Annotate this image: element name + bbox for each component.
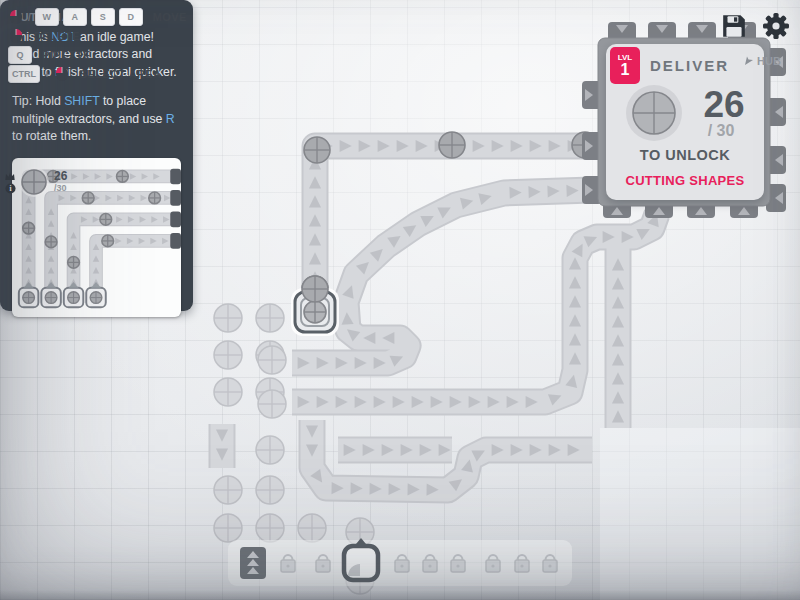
toolbar-slot-locked[interactable]: [530, 540, 570, 586]
hub-compass-arrow-icon: [744, 56, 754, 66]
crown-icon: [4, 171, 16, 181]
level-badge: LVL 1: [610, 47, 640, 84]
belt-item-circle-shape: [304, 137, 330, 163]
resource-node-circle[interactable]: [214, 378, 242, 406]
toolbar-slot-belt[interactable]: [233, 540, 273, 586]
belt-icon: [233, 540, 273, 586]
game-viewport: / W A S D MOVE DELETE Q PIPETTE CTRL + S…: [0, 0, 800, 600]
info-icon: i: [5, 183, 16, 194]
hint-separator: /: [28, 12, 31, 23]
hub-map-label: HUB: [744, 55, 781, 67]
level-badge-number: 1: [621, 62, 630, 78]
hint-plus: +: [44, 69, 50, 80]
hint-delete-label: DELETE: [34, 30, 80, 42]
resource-node-circle[interactable]: [214, 304, 242, 332]
resource-node-circle[interactable]: [256, 514, 284, 542]
hub-reward-label: CUTTING SHAPES: [606, 173, 764, 188]
key-s: S: [91, 8, 115, 26]
pinned-goal-total: /30: [54, 182, 67, 194]
save-button[interactable]: [718, 10, 750, 42]
toolbar-slot-locked[interactable]: [303, 540, 343, 586]
toolbar-slot-locked[interactable]: [438, 540, 478, 586]
resource-node-circle[interactable]: [214, 476, 242, 504]
settings-button[interactable]: [760, 10, 792, 42]
goal-shape-circle-icon: [18, 166, 50, 198]
key-a: A: [63, 8, 87, 26]
belt-item-circle-shape: [439, 132, 465, 158]
resource-node-circle[interactable]: [256, 476, 284, 504]
hint-select-label: SELECT AREA: [80, 68, 162, 80]
pinned-goal[interactable]: i 26 /30: [4, 166, 67, 198]
lock-icon: [303, 540, 343, 586]
resource-node-circle[interactable]: [256, 304, 284, 332]
lock-icon: [438, 540, 478, 586]
topbar: [718, 10, 792, 42]
resource-node-circle[interactable]: [258, 346, 286, 374]
keybinding-hints: / W A S D MOVE DELETE Q PIPETTE CTRL + S…: [8, 8, 187, 84]
hint-pipette-label: PIPETTE: [42, 49, 91, 61]
lock-icon: [268, 540, 308, 586]
toolbar-slot-locked[interactable]: [268, 540, 308, 586]
hub-goal-total: / 30: [692, 122, 750, 140]
svg-text:i: i: [9, 184, 11, 193]
hub-delivered-amount: 26: [692, 84, 756, 126]
extractor-icon: [341, 540, 381, 586]
hub-unlock-label: TO UNLOCK: [606, 147, 764, 163]
hint-select-area: CTRL + SELECT AREA: [8, 65, 187, 83]
hub-delivery-panel[interactable]: LVL 1 DELIVER 26 / 30 TO UNLOCK CUTTING …: [606, 44, 764, 200]
key-d: D: [119, 8, 143, 26]
hint-delete: DELETE: [8, 27, 187, 45]
key-w: W: [35, 8, 59, 26]
resource-node-circle[interactable]: [258, 390, 286, 418]
mouse-right-icon: [8, 28, 24, 44]
key-ctrl: CTRL: [8, 65, 40, 83]
bottom-vignette: [0, 590, 800, 600]
save-icon: [721, 13, 747, 39]
mouse-left-icon: [54, 66, 70, 82]
belt-item-circle-shape: [302, 276, 328, 302]
hint-move: / W A S D MOVE: [8, 8, 187, 26]
hint-move-label: MOVE: [153, 11, 187, 23]
toolbar-slot-extractor-selected[interactable]: [341, 540, 381, 586]
resource-node-circle[interactable]: [214, 514, 242, 542]
mouse-left-icon: [8, 9, 24, 25]
resource-node-circle[interactable]: [214, 341, 242, 369]
hub-deliver-title: DELIVER: [650, 57, 729, 74]
hub-goal-shape-circle-icon: [625, 84, 683, 142]
lock-icon: [530, 540, 570, 586]
resource-node-circle[interactable]: [256, 436, 284, 464]
pinned-goal-amount: 26: [54, 170, 67, 182]
settings-gear-icon: [762, 12, 790, 40]
building-toolbar: [228, 540, 572, 586]
key-q: Q: [8, 46, 32, 64]
hint-pipette: Q PIPETTE: [8, 46, 187, 64]
resource-node-circle[interactable]: [298, 514, 326, 542]
